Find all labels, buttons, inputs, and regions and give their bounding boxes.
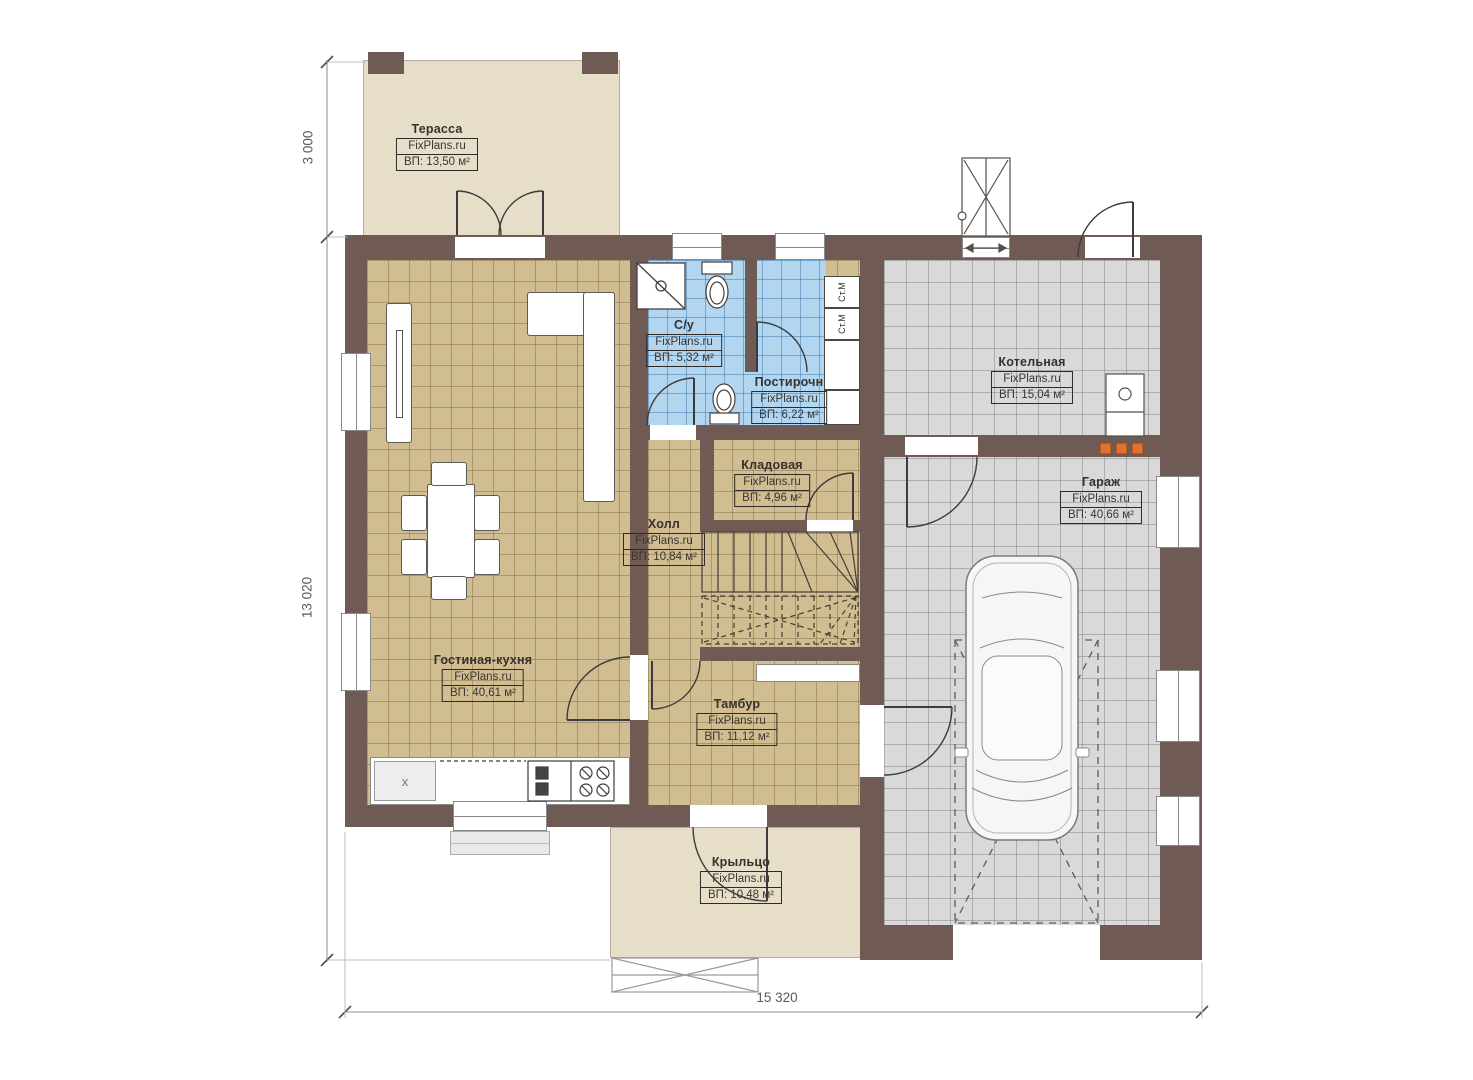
room-area: ВП: 40,66 м²: [1061, 508, 1141, 523]
brand-watermark: FixPlans.ru: [443, 670, 523, 686]
room-name: Терасса: [396, 122, 478, 136]
room-area: ВП: 40,61 м²: [443, 686, 523, 701]
room-area: ВП: 10,84 м²: [624, 550, 704, 565]
brand-watermark: FixPlans.ru: [701, 872, 781, 888]
room-name: Котельная: [991, 355, 1073, 369]
terrace-post: [582, 52, 618, 74]
room-label-boiler: Котельная FixPlans.ru ВП: 15,04 м²: [991, 355, 1073, 404]
wall-hall-vestibule: [700, 647, 860, 661]
room-area: ВП: 4,96 м²: [735, 491, 809, 506]
chair: [431, 576, 467, 600]
room-name: С/у: [646, 318, 722, 332]
room-name: Гостиная-кухня: [434, 653, 533, 667]
room-label-porch: Крыльцо FixPlans.ru ВП: 10,48 м²: [700, 855, 782, 904]
dryer-label: Ст.М: [837, 314, 847, 334]
dimension-house-depth: 13 020: [300, 563, 315, 633]
laundry-cabinet: [824, 390, 860, 425]
dimension-terrace-depth: 3 000: [301, 118, 316, 178]
floor-plan: x Ст.М Ст.М: [0, 0, 1473, 1080]
dimension-house-width: 15 320: [737, 990, 817, 1005]
chair: [474, 539, 500, 575]
room-label-storage: Кладовая FixPlans.ru ВП: 4,96 м²: [734, 458, 810, 507]
brand-watermark: FixPlans.ru: [752, 392, 826, 408]
sink-mark: x: [402, 774, 409, 789]
window: [775, 233, 825, 260]
wall-right: [1160, 235, 1202, 960]
room-label-living: Гостиная-кухня FixPlans.ru ВП: 40,61 м²: [434, 653, 533, 702]
terrace-post: [368, 52, 404, 74]
brand-watermark: FixPlans.ru: [1061, 492, 1141, 508]
room-name: Кладовая: [734, 458, 810, 472]
porch-door-opening: [690, 805, 767, 827]
washer-label: Ст.М: [837, 282, 847, 302]
entry-door-opening: [1085, 237, 1140, 258]
window: [341, 353, 371, 431]
terrace-door-opening: [455, 237, 545, 258]
wall-bottom-left: [345, 805, 884, 827]
window-sill: [450, 831, 550, 855]
chair: [431, 462, 467, 486]
brand-watermark: FixPlans.ru: [397, 139, 477, 155]
window-shaft: [962, 237, 1010, 258]
porch-step: [612, 958, 758, 992]
room-name: Крыльцо: [700, 855, 782, 869]
window: [1156, 476, 1200, 548]
kitchen-sink: x: [374, 761, 436, 801]
room-name: Гараж: [1060, 475, 1142, 489]
window: [453, 801, 547, 831]
garage-side-door-opening: [860, 705, 884, 777]
living-door-opening: [630, 655, 648, 720]
tv-screen: [396, 330, 403, 418]
sofa-chaise: [583, 292, 615, 502]
room-area: ВП: 5,32 м²: [647, 351, 721, 366]
room-name: Холл: [623, 517, 705, 531]
room-label-bathroom: С/у FixPlans.ru ВП: 5,32 м²: [646, 318, 722, 367]
room-area: ВП: 10,48 м²: [701, 888, 781, 903]
room-label-garage: Гараж FixPlans.ru ВП: 40,66 м²: [1060, 475, 1142, 524]
wall-left: [345, 235, 367, 827]
room-name: Постирочн: [751, 375, 827, 389]
room-area: ВП: 15,04 м²: [992, 388, 1072, 403]
brand-watermark: FixPlans.ru: [697, 714, 776, 730]
storage-door-opening: [807, 520, 853, 532]
chair: [401, 539, 427, 575]
room-label-vestibule: Тамбур FixPlans.ru ВП: 11,12 м²: [696, 697, 777, 746]
wall-bath-laundry: [745, 260, 757, 372]
bathroom-door-opening: [650, 425, 696, 440]
garage-gate-opening: [953, 925, 1100, 960]
dryer-machine: Ст.М: [824, 308, 860, 340]
dining-table: [427, 484, 475, 578]
brand-watermark: FixPlans.ru: [735, 475, 809, 491]
wall-storage-left: [700, 440, 714, 520]
brand-watermark: FixPlans.ru: [992, 372, 1072, 388]
room-area: ВП: 13,50 м²: [397, 155, 477, 170]
window: [1156, 670, 1200, 742]
laundry-cabinet: [824, 340, 860, 390]
vestibule-bench: [756, 664, 860, 682]
room-label-hall: Холл FixPlans.ru ВП: 10,84 м²: [623, 517, 705, 566]
chair: [474, 495, 500, 531]
brand-watermark: FixPlans.ru: [624, 534, 704, 550]
boiler-door-opening: [905, 437, 978, 455]
window: [1156, 796, 1200, 846]
washing-machine: Ст.М: [824, 276, 860, 308]
chair: [401, 495, 427, 531]
window: [341, 613, 371, 691]
room-label-terrace: Терасса FixPlans.ru ВП: 13,50 м²: [396, 122, 478, 171]
brand-watermark: FixPlans.ru: [647, 335, 721, 351]
room-label-laundry: Постирочн FixPlans.ru ВП: 6,22 м²: [751, 375, 827, 424]
room-area: ВП: 6,22 м²: [752, 408, 826, 423]
room-name: Тамбур: [696, 697, 777, 711]
room-area: ВП: 11,12 м²: [697, 730, 776, 745]
window: [672, 233, 722, 260]
wall-spine: [860, 257, 884, 960]
